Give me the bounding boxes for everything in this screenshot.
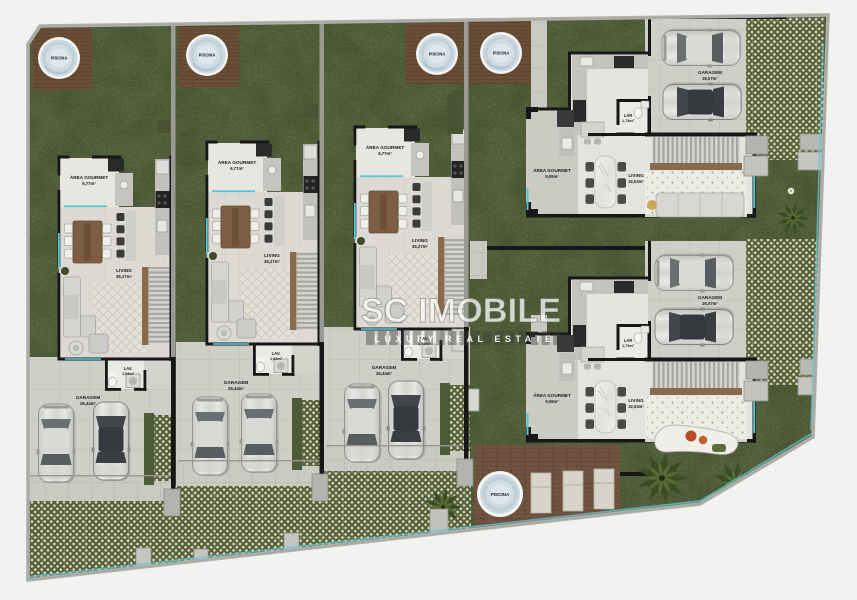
svg-text:32,53m²: 32,53m² [628,404,644,409]
svg-text:6,77m²: 6,77m² [378,151,392,156]
svg-text:32,53m²: 32,53m² [628,179,644,184]
svg-text:36,27m²: 36,27m² [116,274,133,279]
svg-text:LAR: LAR [624,113,633,118]
svg-text:GARAGEM: GARAGEM [698,70,722,75]
svg-text:ÁREA GOURMET: ÁREA GOURMET [218,159,257,165]
svg-text:LAV.: LAV. [124,366,133,371]
svg-text:6,77m²: 6,77m² [230,166,244,171]
svg-text:LIVING: LIVING [628,173,644,178]
svg-text:9,09m²: 9,09m² [545,399,559,404]
svg-text:GARAGEM: GARAGEM [372,365,397,370]
svg-text:6,77m²: 6,77m² [82,181,96,186]
svg-text:GARAGEM: GARAGEM [76,395,101,400]
svg-text:ÁREA GOURMET: ÁREA GOURMET [70,174,109,180]
svg-text:GARAGEM: GARAGEM [224,380,249,385]
svg-text:LIVING: LIVING [116,268,132,273]
svg-text:GARAGEM: GARAGEM [698,295,722,300]
svg-text:PISCINA: PISCINA [491,492,510,497]
svg-text:ÁREA GOURMET: ÁREA GOURMET [533,392,571,398]
svg-text:ÁREA GOURMET: ÁREA GOURMET [366,144,405,150]
svg-text:1,73m²: 1,73m² [622,119,635,123]
svg-text:SC IMOBILE: SC IMOBILE [361,292,561,330]
svg-text:1,92m²: 1,92m² [270,357,283,361]
svg-text:36,27m²: 36,27m² [264,259,281,264]
svg-text:26,07m²: 26,07m² [702,76,718,81]
svg-text:LUXURY REAL ESTATE: LUXURY REAL ESTATE [374,334,555,344]
svg-text:LIVING: LIVING [412,238,428,243]
svg-text:36,27m²: 36,27m² [412,244,429,249]
svg-text:26,44m²: 26,44m² [80,401,97,406]
svg-text:LAV.: LAV. [272,351,281,356]
svg-text:26,44m²: 26,44m² [376,371,393,376]
svg-text:1,73m²: 1,73m² [622,344,635,348]
svg-text:26,44m²: 26,44m² [228,386,245,391]
svg-text:1,92m²: 1,92m² [122,372,135,376]
svg-text:LAR: LAR [624,338,633,343]
svg-text:LIVING: LIVING [264,253,280,258]
svg-text:9,09m²: 9,09m² [545,174,559,179]
svg-text:LIVING: LIVING [628,398,644,403]
svg-text:26,07m²: 26,07m² [702,301,718,306]
svg-text:ÁREA GOURMET: ÁREA GOURMET [533,167,571,173]
